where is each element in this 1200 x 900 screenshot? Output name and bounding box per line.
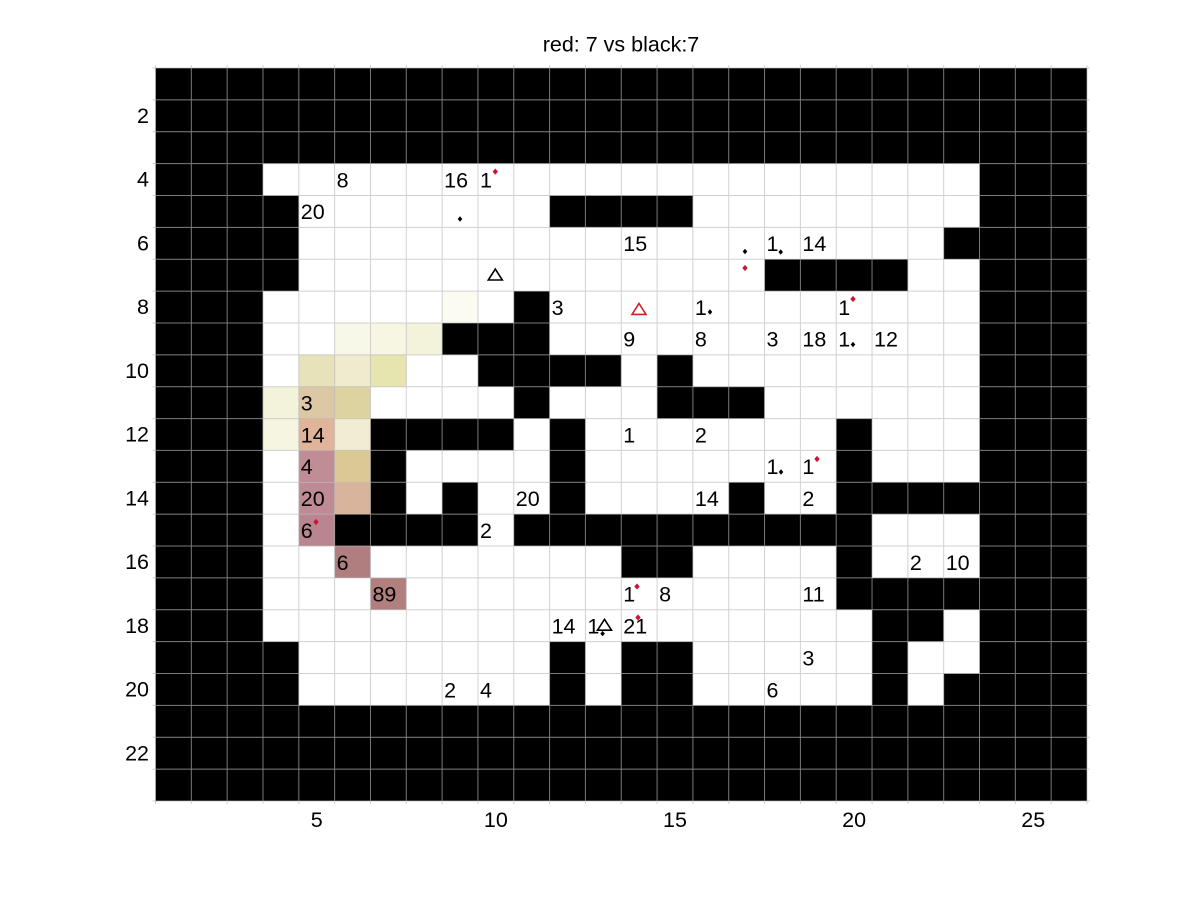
svg-text:4: 4 (480, 678, 492, 702)
svg-text:3: 3 (552, 296, 564, 320)
svg-text:1: 1 (838, 296, 850, 320)
svg-text:25: 25 (1021, 808, 1045, 832)
svg-text:6: 6 (767, 678, 779, 702)
svg-text:1: 1 (695, 296, 707, 320)
svg-text:1: 1 (767, 232, 779, 256)
svg-text:1: 1 (767, 455, 779, 479)
svg-text:20: 20 (301, 487, 325, 511)
svg-text:14: 14 (301, 423, 325, 447)
svg-text:10: 10 (484, 808, 508, 832)
svg-text:14: 14 (802, 232, 826, 256)
svg-text:11: 11 (802, 583, 824, 607)
svg-text:4: 4 (137, 168, 149, 192)
svg-text:15: 15 (623, 232, 647, 256)
svg-text:3: 3 (802, 646, 814, 670)
svg-text:21: 21 (623, 615, 647, 639)
svg-text:2: 2 (137, 104, 149, 128)
svg-text:8: 8 (137, 295, 149, 319)
svg-text:12: 12 (125, 423, 149, 447)
svg-text:red: 7 vs black:7: red: 7 vs black:7 (543, 33, 700, 57)
svg-text:2: 2 (480, 519, 492, 543)
svg-text:14: 14 (552, 615, 576, 639)
svg-text:5: 5 (311, 808, 323, 832)
svg-text:4: 4 (301, 455, 313, 479)
svg-text:8: 8 (659, 583, 671, 607)
svg-text:16: 16 (125, 550, 149, 574)
svg-text:8: 8 (337, 168, 349, 192)
svg-text:1: 1 (802, 455, 814, 479)
svg-text:10: 10 (125, 359, 149, 383)
svg-text:20: 20 (301, 200, 325, 224)
svg-text:8: 8 (695, 328, 707, 352)
svg-text:20: 20 (516, 487, 540, 511)
svg-text:3: 3 (301, 391, 313, 415)
svg-text:18: 18 (802, 328, 826, 352)
svg-text:2: 2 (695, 423, 707, 447)
svg-text:1: 1 (480, 168, 492, 192)
svg-text:10: 10 (946, 551, 970, 575)
svg-text:2: 2 (802, 487, 814, 511)
svg-text:1: 1 (838, 328, 850, 352)
svg-text:6: 6 (337, 551, 349, 575)
svg-text:2: 2 (910, 551, 922, 575)
svg-text:1: 1 (587, 615, 599, 639)
svg-text:22: 22 (125, 741, 149, 765)
svg-text:14: 14 (695, 487, 719, 511)
svg-text:9: 9 (623, 328, 635, 352)
svg-text:6: 6 (301, 519, 313, 543)
svg-text:1: 1 (623, 583, 635, 607)
svg-text:14: 14 (125, 486, 149, 510)
svg-text:20: 20 (125, 678, 149, 702)
svg-text:89: 89 (372, 583, 396, 607)
svg-text:1: 1 (623, 423, 635, 447)
svg-text:18: 18 (125, 614, 149, 638)
svg-text:2: 2 (444, 678, 456, 702)
svg-text:6: 6 (137, 231, 149, 255)
svg-text:16: 16 (444, 168, 468, 192)
svg-text:3: 3 (767, 328, 779, 352)
svg-text:20: 20 (842, 808, 866, 832)
svg-text:15: 15 (663, 808, 687, 832)
svg-text:12: 12 (874, 328, 898, 352)
